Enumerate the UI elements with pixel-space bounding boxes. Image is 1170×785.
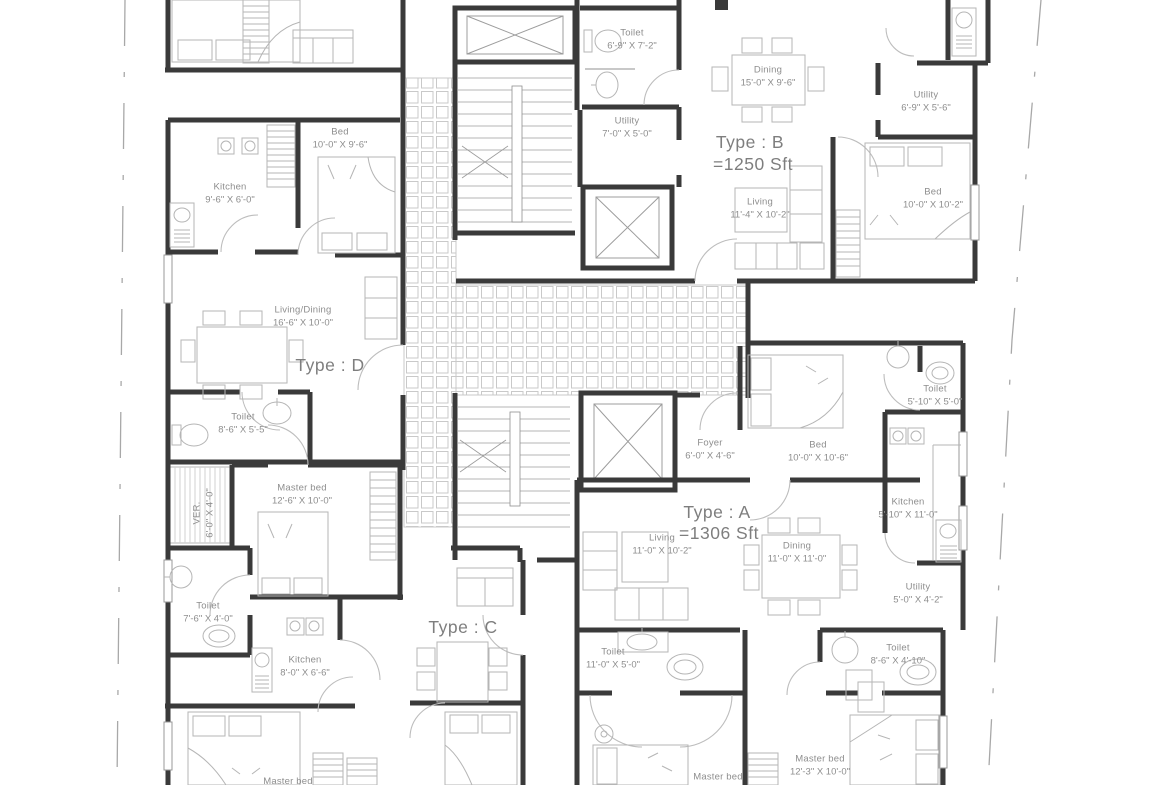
unit-type-label-c: Type : C — [428, 617, 497, 637]
room-label-bed-a: Bed10'-0" X 10'-6" — [788, 440, 848, 465]
room-name: Bed — [788, 440, 848, 453]
room-name: Kitchen — [878, 497, 937, 510]
room-dims: 8'-0" X 6'-6" — [280, 667, 329, 680]
room-label-kitchen-c: Kitchen8'-0" X 6'-6" — [280, 655, 329, 680]
room-dims: 10'-0" X 10'-2" — [903, 199, 963, 212]
room-dims: 16'-6" X 10'-0" — [273, 317, 333, 330]
room-label-toilet-a: Toilet5'-10" X 5'-0" — [908, 384, 963, 409]
unit-type-label-b: Type : B — [716, 132, 784, 152]
room-dims: 8'-6" X 5'-5" — [218, 424, 267, 437]
room-name: Toilet — [218, 412, 267, 425]
room-name: Living — [730, 197, 789, 210]
room-label-bed-d: Bed10'-0" X 9'-6" — [313, 127, 368, 152]
room-name: Master bed — [688, 772, 747, 785]
room-name: Master bed — [790, 754, 850, 767]
room-name: Master bed — [272, 483, 332, 496]
room-label-utility-a: Utility5'-0" X 4'-2" — [893, 582, 942, 607]
room-name: Bed — [903, 187, 963, 200]
room-label-toilet-a3: Toilet8'-6" X 4'-10" — [871, 643, 926, 668]
room-label-bed-tr: Bed10'-0" X 10'-2" — [903, 187, 963, 212]
room-label-living-b: Living11'-4" X 10'-2" — [730, 197, 789, 222]
room-label-kitchen-a: Kitchen5'-10" X 11'-0" — [878, 497, 937, 522]
room-dims: 11'-0" X 5'-0" — [586, 659, 640, 672]
room-dims: 8'-6" X 4'-10" — [871, 655, 926, 668]
room-dims: 10'-0" X 10'-6" — [788, 452, 848, 465]
room-label-livingdining-d: Living/Dining16'-6" X 10'-0" — [273, 305, 333, 330]
room-name: Living/Dining — [273, 305, 333, 318]
room-name: Toilet — [871, 643, 926, 656]
floor-plan: Toilet6'-9" X 7'-2" Dining15'-0" X 9'-6"… — [0, 0, 1170, 785]
room-dims: 12'-6" X 10'-0" — [272, 495, 332, 508]
room-name: Bed — [313, 127, 368, 140]
room-label-toilet-a2: Toilet11'-0" X 5'-0" — [586, 647, 640, 672]
room-label-utility-tr: Utility6'-9" X 5'-6" — [901, 90, 950, 115]
room-label-master-ac: Master bed11'-0" X 10'-6" — [688, 772, 747, 785]
room-name: Toilet — [607, 28, 656, 41]
room-dims: 12'-3" X 10'-0" — [790, 766, 850, 779]
room-dims: 7'-6" X 4'-0" — [183, 613, 232, 626]
room-name: Utility — [893, 582, 942, 595]
room-dims: 6'-9" X 5'-6" — [901, 102, 950, 115]
unit-type-area-b: =1250 Sft — [713, 154, 793, 174]
room-name: Utility — [602, 116, 651, 129]
room-labels: Toilet6'-9" X 7'-2" Dining15'-0" X 9'-6"… — [0, 0, 1170, 785]
unit-type-area-a: =1306 Sft — [679, 523, 759, 543]
room-dims: 9'-6" X 6'-0" — [205, 194, 254, 207]
room-name: Kitchen — [205, 182, 254, 195]
room-dims: 5'-10" X 11'-0" — [878, 509, 937, 522]
room-dims: 15'-0" X 9'-6" — [741, 77, 796, 90]
room-label-master-bl: Master bed — [263, 776, 313, 785]
room-dims: 11'-4" X 10'-2" — [730, 209, 789, 222]
room-label-dining-b: Dining15'-0" X 9'-6" — [741, 65, 796, 90]
room-dims: 11'-0" X 10'-2" — [632, 545, 691, 558]
room-name: Dining — [768, 541, 827, 554]
room-label-utility-b: Utility7'-0" X 5'-0" — [602, 116, 651, 141]
room-dims: 5'-10" X 5'-0" — [908, 396, 963, 409]
room-label-kitchen-d: Kitchen9'-6" X 6'-0" — [205, 182, 254, 207]
room-dims: 6'-0" X 4'-6" — [685, 450, 734, 463]
room-name: Dining — [741, 65, 796, 78]
room-label-master-d: Master bed12'-6" X 10'-0" — [272, 483, 332, 508]
room-label-toilet-b: Toilet6'-9" X 7'-2" — [607, 28, 656, 53]
room-name: VER. — [192, 488, 205, 537]
room-name: Toilet — [908, 384, 963, 397]
room-dims: 6'-0" X 4'-0" — [204, 488, 217, 537]
room-name: Toilet — [183, 601, 232, 614]
unit-type-label-a: Type : A — [683, 502, 750, 522]
room-label-toilet-c: Toilet7'-6" X 4'-0" — [183, 601, 232, 626]
room-name: Master bed — [263, 776, 313, 785]
unit-type-label-d: Type : D — [295, 355, 364, 375]
room-dims: 7'-0" X 5'-0" — [602, 128, 651, 141]
room-name: Utility — [901, 90, 950, 103]
room-label-verandah: VER.6'-0" X 4'-0" — [192, 488, 217, 537]
room-label-toilet-d: Toilet8'-6" X 5'-5" — [218, 412, 267, 437]
room-name: Kitchen — [280, 655, 329, 668]
room-dims: 10'-0" X 9'-6" — [313, 139, 368, 152]
room-label-master-ar: Master bed12'-3" X 10'-0" — [790, 754, 850, 779]
room-name: Toilet — [586, 647, 640, 660]
room-dims: 6'-9" X 7'-2" — [607, 40, 656, 53]
room-label-dining-a: Dining11'-0" X 11'-0" — [768, 541, 827, 566]
room-name: Foyer — [685, 438, 734, 451]
room-label-foyer-a: Foyer6'-0" X 4'-6" — [685, 438, 734, 463]
room-dims: 5'-0" X 4'-2" — [893, 594, 942, 607]
room-dims: 11'-0" X 11'-0" — [768, 553, 827, 566]
